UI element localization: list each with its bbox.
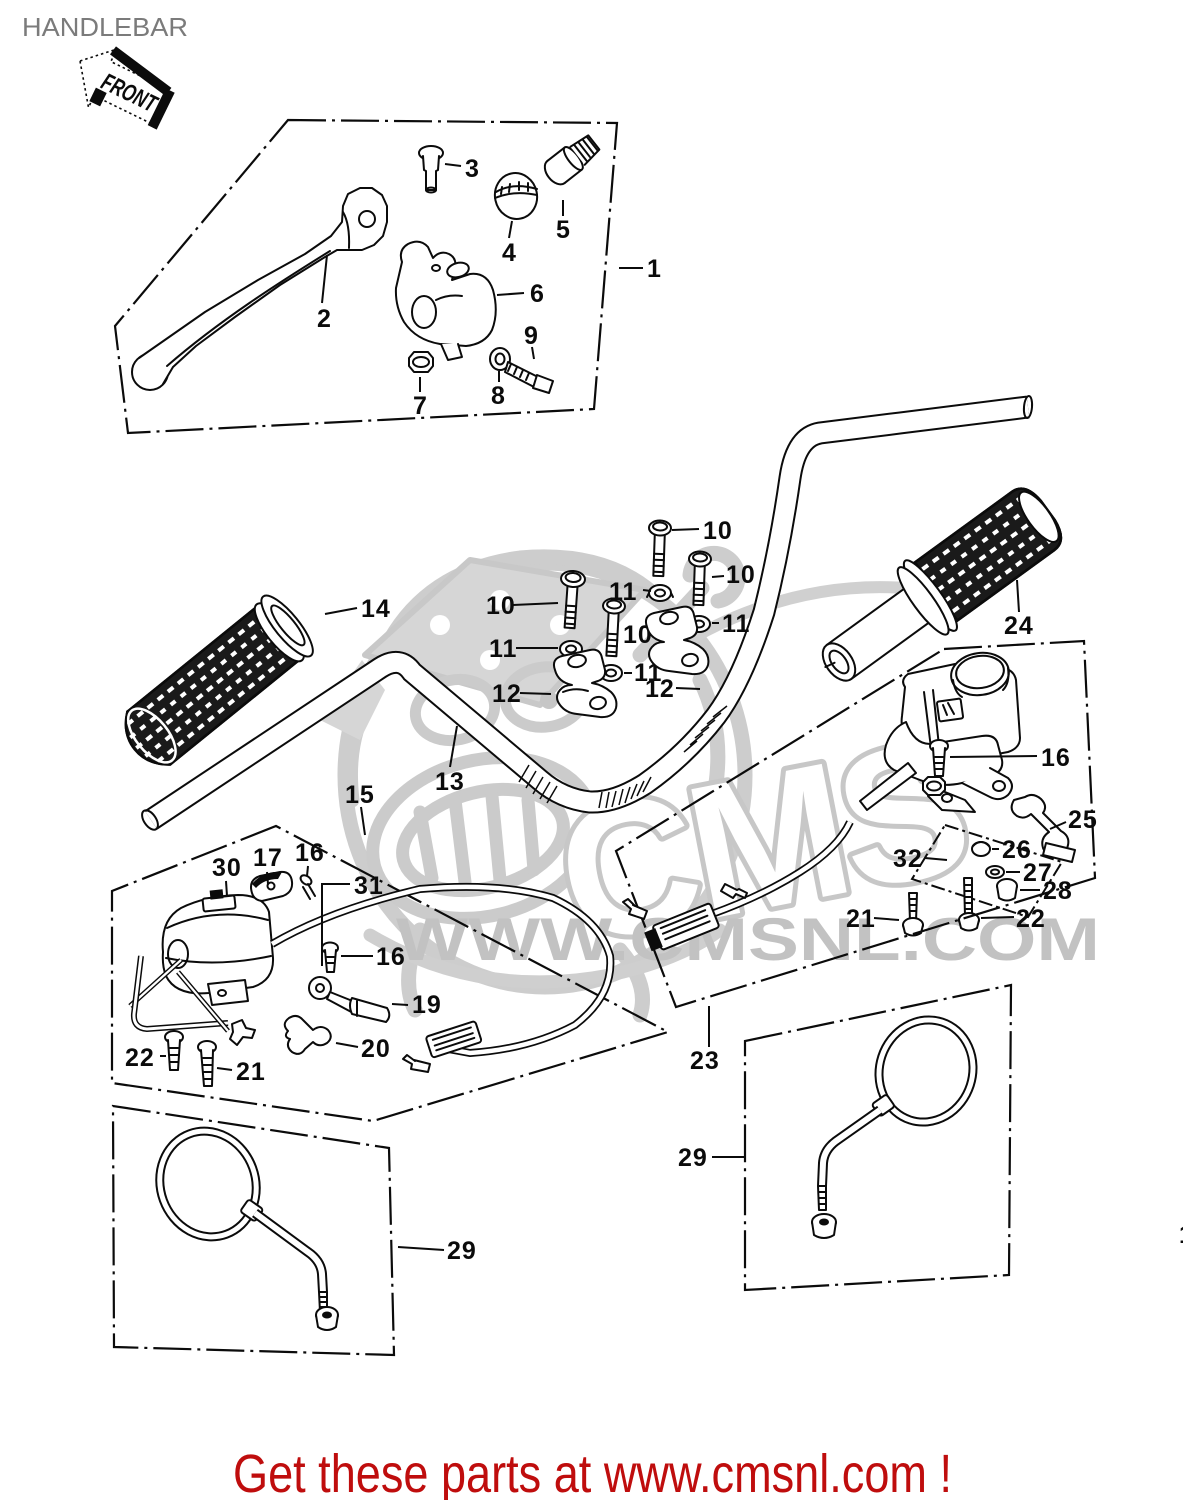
svg-text:9: 9: [524, 322, 539, 350]
svg-text:14: 14: [361, 595, 391, 623]
svg-text:16: 16: [295, 839, 325, 867]
svg-text:WWW.CMSNL.COM: WWW.CMSNL.COM: [396, 906, 1100, 973]
svg-text:3: 3: [465, 155, 480, 183]
svg-text:10: 10: [703, 517, 733, 545]
svg-text:HANDLEBAR: HANDLEBAR: [22, 12, 188, 42]
svg-text:10: 10: [486, 592, 516, 620]
svg-text:8: 8: [491, 382, 506, 410]
svg-text:10: 10: [726, 561, 756, 589]
svg-text:22: 22: [125, 1044, 155, 1072]
svg-text:19: 19: [412, 991, 442, 1019]
svg-text:29: 29: [447, 1237, 477, 1265]
svg-text:29: 29: [678, 1144, 708, 1172]
svg-text:1: 1: [1179, 1221, 1183, 1249]
svg-text:24: 24: [1004, 612, 1034, 640]
svg-text:17: 17: [253, 844, 283, 872]
svg-text:Get these parts at www.cmsnl.c: Get these parts at www.cmsnl.com !: [233, 1444, 952, 1500]
svg-text:20: 20: [361, 1035, 391, 1063]
svg-text:21: 21: [236, 1058, 266, 1086]
svg-text:4: 4: [502, 239, 517, 267]
svg-text:28: 28: [1043, 877, 1073, 905]
svg-text:11: 11: [722, 610, 750, 638]
svg-text:16: 16: [376, 943, 406, 971]
svg-text:32: 32: [893, 845, 923, 873]
svg-text:5: 5: [556, 216, 571, 244]
svg-text:23: 23: [690, 1047, 720, 1075]
svg-text:11: 11: [609, 578, 637, 606]
svg-text:30: 30: [212, 854, 242, 882]
svg-text:7: 7: [413, 392, 428, 420]
svg-text:11: 11: [489, 635, 517, 663]
svg-text:12: 12: [645, 675, 675, 703]
svg-text:2: 2: [317, 305, 332, 333]
svg-text:1: 1: [647, 255, 662, 283]
svg-text:16: 16: [1041, 744, 1071, 772]
svg-text:12: 12: [492, 680, 522, 708]
svg-text:15: 15: [345, 781, 375, 809]
svg-text:22: 22: [1016, 905, 1046, 933]
svg-text:31: 31: [354, 872, 384, 900]
svg-text:6: 6: [530, 280, 545, 308]
svg-text:21: 21: [846, 905, 876, 933]
svg-text:13: 13: [435, 768, 465, 796]
